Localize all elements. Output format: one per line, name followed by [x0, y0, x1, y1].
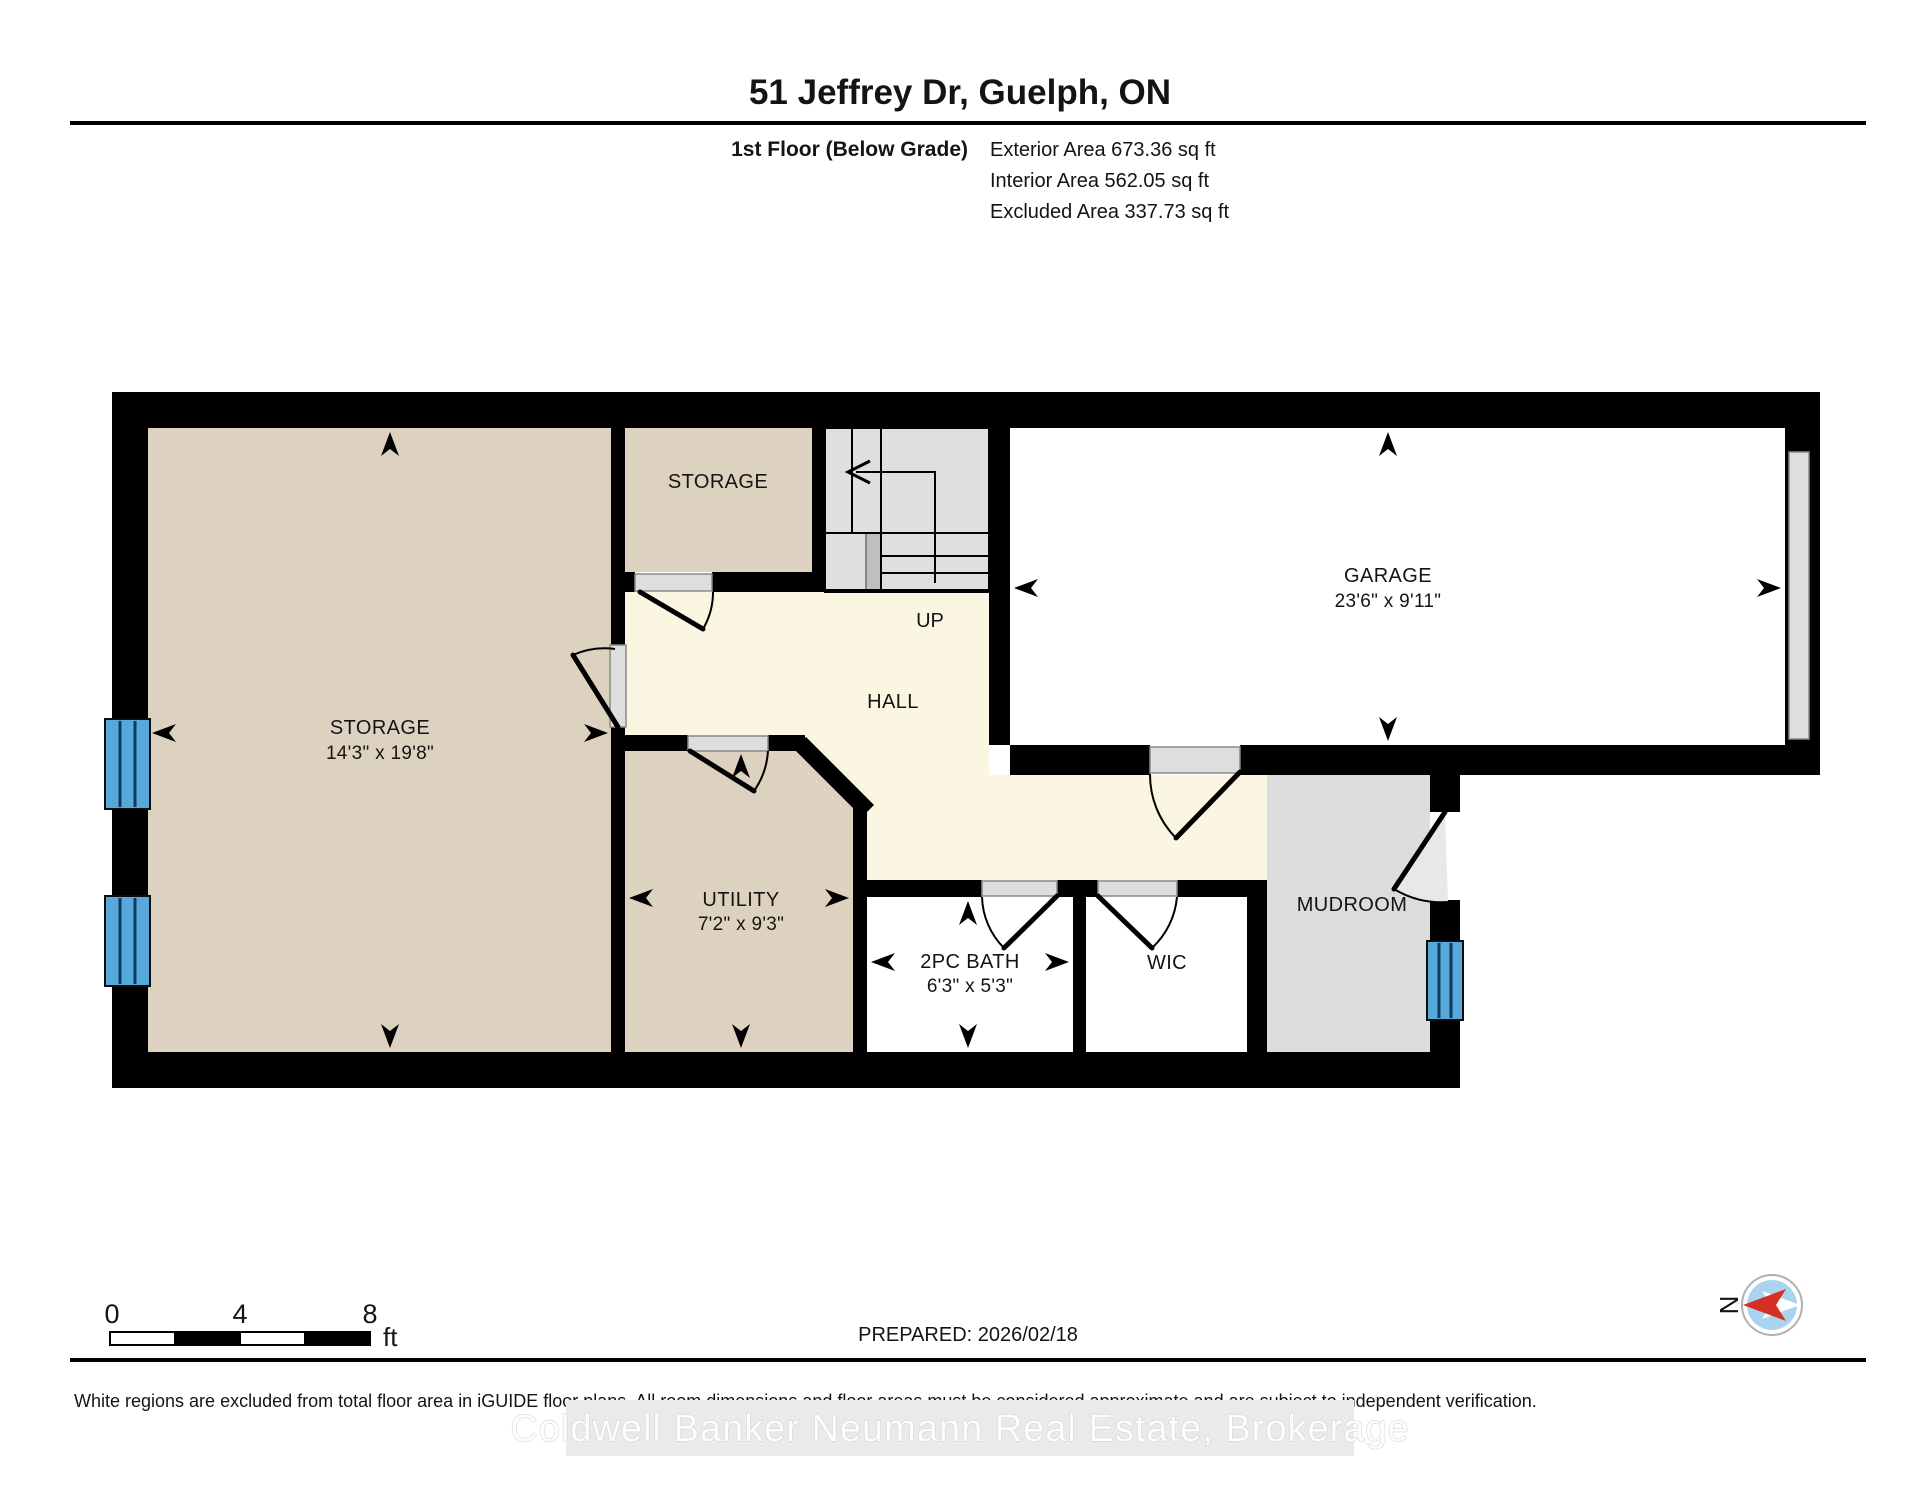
wic-room: [1086, 897, 1247, 1052]
scale-end: 8: [362, 1299, 377, 1329]
utility-label: UTILITY: [702, 889, 779, 911]
prepared-date: PREPARED: 2026/02/18: [858, 1324, 1078, 1346]
excluded-area: Excluded Area 337.73 sq ft: [990, 201, 1229, 223]
floor-plan-canvas: 51 Jeffrey Dr, Guelph, ON 1st Floor (Bel…: [0, 0, 1920, 1484]
page-title: 51 Jeffrey Dr, Guelph, ON: [749, 73, 1171, 112]
scale-unit: ft: [383, 1322, 398, 1352]
interior-area: Interior Area 562.05 sq ft: [990, 170, 1209, 192]
window-icon: [105, 719, 150, 809]
bath-dims: 6'3" x 5'3": [927, 976, 1013, 997]
bath-room: [867, 897, 1073, 1052]
compass-north-label: N: [1714, 1296, 1744, 1315]
compass-icon: N: [1714, 1275, 1802, 1335]
mudroom-label: MUDROOM: [1297, 894, 1408, 916]
garage-overhead-door: [1789, 452, 1809, 739]
window-icon: [105, 896, 150, 986]
bath-label: 2PC BATH: [920, 951, 1020, 973]
exterior-area: Exterior Area 673.36 sq ft: [990, 139, 1216, 161]
bath-door-sill: [982, 881, 1057, 896]
footer: 0 4 8 ft PREPARED: 2026/02/18 N White re…: [70, 1275, 1866, 1456]
scale-start: 0: [104, 1299, 119, 1329]
stair-landing-slab: [866, 533, 881, 592]
utility-dims: 7'2" x 9'3": [698, 914, 784, 935]
storage-main-dims: 14'3" x 19'8": [326, 743, 434, 764]
garage-label: GARAGE: [1344, 565, 1432, 587]
storage-small-label: STORAGE: [668, 471, 768, 493]
watermark: Coldwell Banker Neumann Real Estate, Bro…: [510, 1400, 1409, 1456]
watermark-text: Coldwell Banker Neumann Real Estate, Bro…: [510, 1408, 1409, 1450]
window-icon: [1427, 941, 1463, 1020]
floor-label: 1st Floor (Below Grade): [731, 138, 968, 161]
storage-main-room: [148, 428, 612, 1052]
garage-door-sill: [1150, 747, 1240, 773]
scale-mid: 4: [232, 1299, 247, 1329]
garage-dims: 23'6" x 9'11": [1335, 591, 1442, 612]
floor-plan: STORAGE 14'3" x 19'8" STORAGE GARAGE 23'…: [105, 392, 1820, 1088]
stairs-up-label: UP: [916, 610, 944, 632]
floor-plan-page: 51 Jeffrey Dr, Guelph, ON 1st Floor (Bel…: [0, 0, 1920, 1484]
storage-main-label: STORAGE: [330, 717, 430, 739]
storage-small-room: [625, 428, 812, 572]
utility-door-sill: [688, 736, 768, 751]
hall-label: HALL: [867, 691, 919, 713]
wic-label: WIC: [1147, 952, 1187, 974]
staircase-area: [825, 428, 989, 592]
wic-door-sill: [1098, 881, 1177, 896]
header: 51 Jeffrey Dr, Guelph, ON 1st Floor (Bel…: [70, 73, 1866, 223]
scale-bar: 0 4 8 ft: [104, 1299, 398, 1352]
storage-small-door-sill: [635, 574, 712, 591]
